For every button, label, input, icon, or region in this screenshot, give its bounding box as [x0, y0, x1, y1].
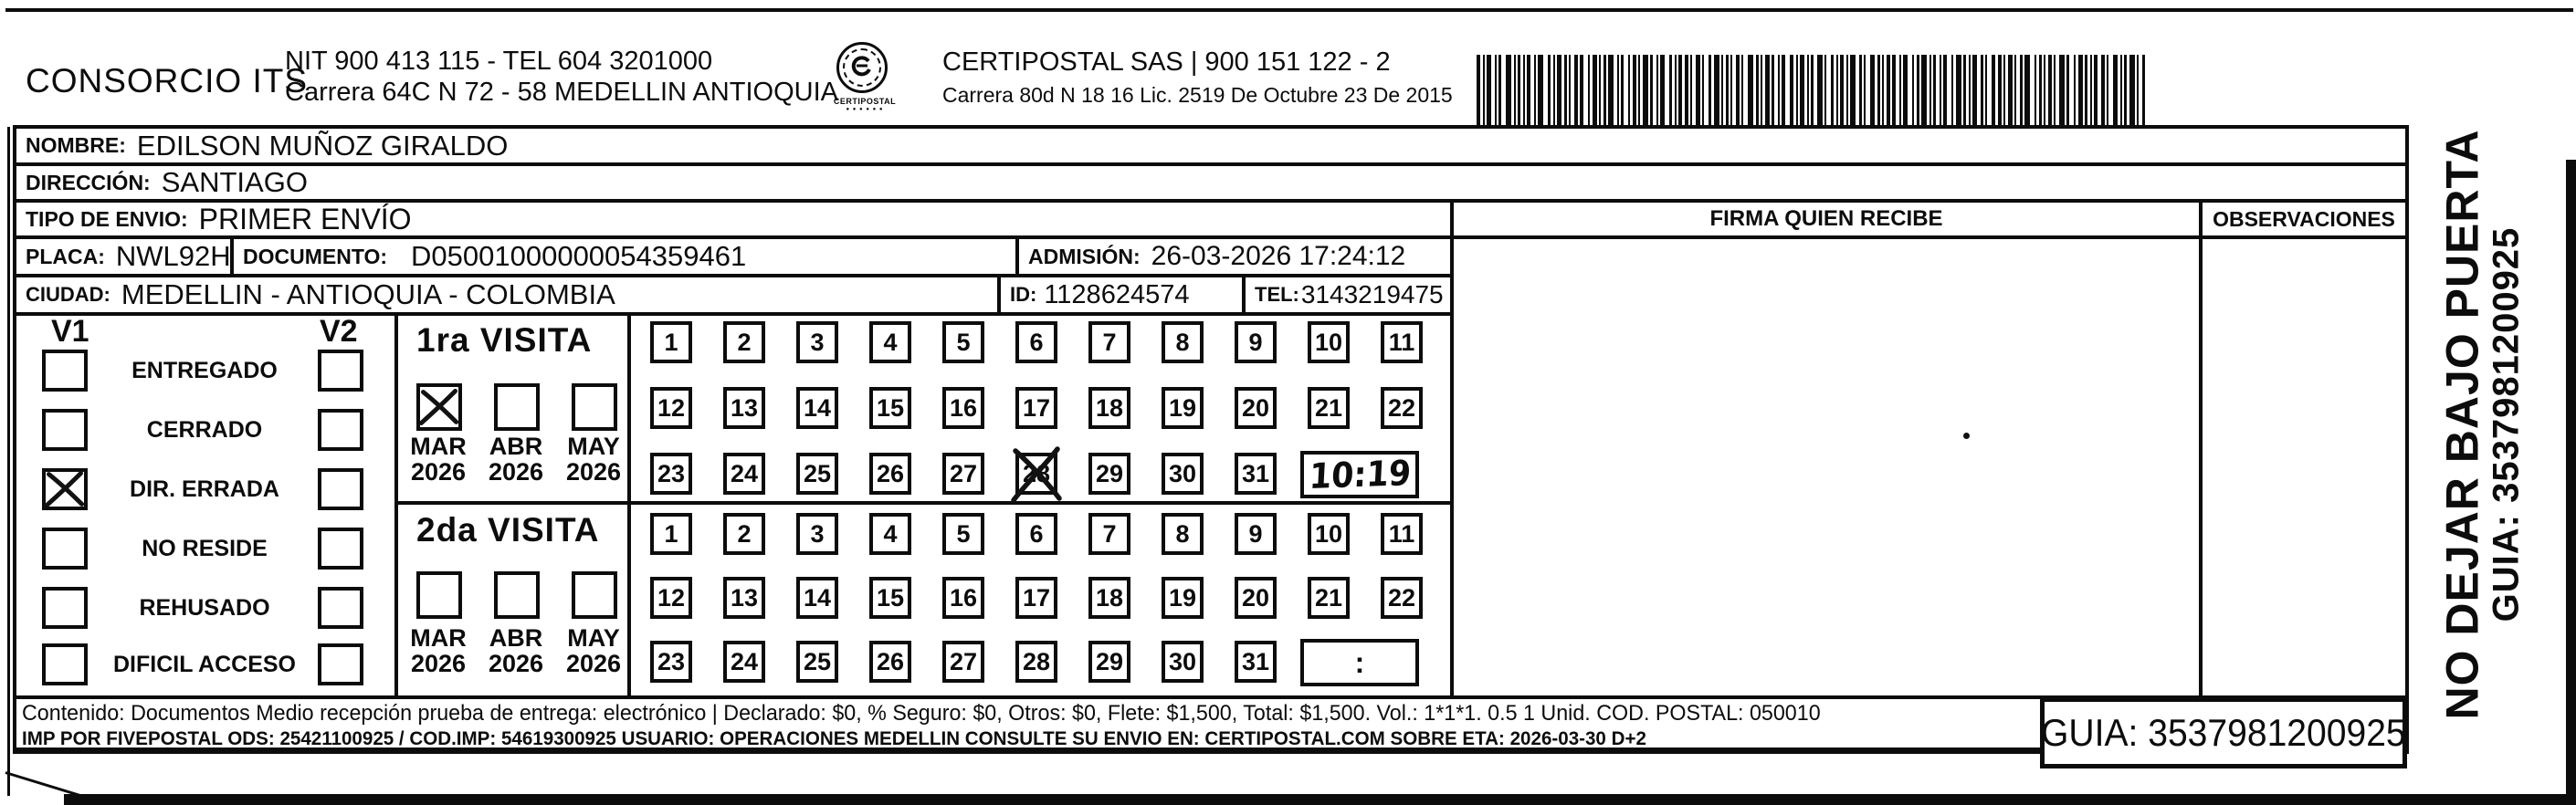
visit1-day-23[interactable]: 23 [650, 453, 692, 495]
visit2-day-17[interactable]: 17 [1015, 577, 1057, 619]
documento-label: DOCUMENTO: [243, 245, 387, 269]
visit2-day-21[interactable]: 21 [1308, 577, 1350, 619]
documento-cell: DOCUMENTO: D05001000000054359461 [230, 235, 1019, 277]
v1-checkbox-entregado[interactable] [42, 350, 88, 392]
v1-checkbox-dir-errada[interactable] [42, 468, 88, 510]
visit2-day-29[interactable]: 29 [1088, 641, 1130, 683]
visit1-day-8[interactable]: 8 [1162, 321, 1204, 363]
visit2-day-27[interactable]: 27 [942, 641, 984, 683]
visit1-day-9[interactable]: 9 [1235, 321, 1277, 363]
visit1-day-13[interactable]: 13 [723, 387, 765, 429]
observaciones-header: OBSERVACIONES [2199, 199, 2409, 239]
visit1-day-11[interactable]: 11 [1381, 321, 1423, 363]
firma-area[interactable] [1450, 235, 2203, 699]
visit1-day-5[interactable]: 5 [942, 321, 984, 363]
side-note: NO DEJAR BAJO PUERTA GUIA: 3537981200925 [2400, 123, 2564, 726]
v1-header: V1 [51, 314, 89, 350]
visit2-day-18[interactable]: 18 [1088, 577, 1130, 619]
nombre-value: EDILSON MUÑOZ GIRALDO [137, 130, 509, 162]
visit1-handwritten-time: 10:19 [1308, 453, 1412, 497]
documento-value: D05001000000054359461 [411, 240, 746, 273]
visit1-day-6[interactable]: 6 [1015, 321, 1057, 363]
visit1-month-checkbox-may[interactable] [572, 383, 617, 431]
nombre-row: NOMBRE: EDILSON MUÑOZ GIRALDO [13, 125, 2409, 166]
visit2-month-checkbox-abr[interactable] [494, 571, 540, 619]
visit1-day-12[interactable]: 12 [650, 387, 692, 429]
firma-header: FIRMA QUIEN RECIBE [1450, 199, 2203, 239]
visit1-day-25[interactable]: 25 [796, 453, 838, 495]
certipostal-address-line: Carrera 80d N 18 16 Lic. 2519 De Octubre… [942, 83, 1453, 108]
visit2-day-19[interactable]: 19 [1162, 577, 1204, 619]
placa-value: NWL92H [116, 240, 231, 273]
handwritten-x-mark [44, 470, 86, 508]
visit1-day-22[interactable]: 22 [1381, 387, 1423, 429]
v2-checkbox-cerrado[interactable] [318, 409, 363, 451]
visit2-day-26[interactable]: 26 [869, 641, 911, 683]
visit2-day-20[interactable]: 20 [1235, 577, 1277, 619]
admision-label: ADMISIÓN: [1028, 245, 1141, 269]
visit2-day-25[interactable]: 25 [796, 641, 838, 683]
observaciones-area[interactable] [2199, 235, 2409, 699]
visit1-day-30[interactable]: 30 [1162, 453, 1204, 495]
company-nit-line: NIT 900 413 115 - TEL 604 3201000 [285, 46, 838, 77]
visit2-day-13[interactable]: 13 [723, 577, 765, 619]
visit1-month-label-may: MAY [563, 433, 625, 461]
visit2-day-8[interactable]: 8 [1162, 513, 1204, 555]
visit2-day-28[interactable]: 28 [1015, 641, 1057, 683]
visit1-day-18[interactable]: 18 [1088, 387, 1130, 429]
v1-checkbox-cerrado[interactable] [42, 409, 88, 451]
id-cell: ID: 1128624574 [997, 274, 1246, 316]
v1-checkbox-no-reside[interactable] [42, 528, 88, 570]
visit2-title: 2da VISITA [416, 511, 600, 549]
visit2-month-label-may: MAY [563, 624, 625, 653]
status-option-label-dir-errada: DIR. ERRADA [95, 468, 314, 510]
status-option-label-dificil-acceso: DIFICIL ACCESO [95, 643, 314, 685]
visit2-day-4[interactable]: 4 [869, 513, 911, 555]
visit1-year-label-abr: 2026 [485, 458, 547, 486]
visit2-day-15[interactable]: 15 [869, 577, 911, 619]
ciudad-label: CIUDAD: [26, 283, 110, 307]
tipo-envio-value: PRIMER ENVÍO [199, 203, 412, 236]
visit2-day-2[interactable]: 2 [723, 513, 765, 555]
page-top-edge [5, 8, 2573, 12]
visit1-day-21[interactable]: 21 [1308, 387, 1350, 429]
visit2-day-1[interactable]: 1 [650, 513, 692, 555]
direccion-value: SANTIAGO [162, 166, 308, 199]
shipping-label-document: CONSORCIO ITS NIT 900 413 115 - TEL 604 … [0, 0, 2576, 805]
visit2-month-checkbox-mar[interactable] [416, 571, 462, 619]
visit1-year-label-mar: 2026 [407, 458, 469, 486]
guia-number-box: GUIA: 3537981200925 [2040, 697, 2407, 768]
certipostal-logo-caption: CERTIPOSTAL [824, 97, 906, 106]
guia-number-text: GUIA: 3537981200925 [2041, 711, 2406, 755]
direccion-label: DIRECCIÓN: [26, 171, 151, 195]
v2-header: V2 [320, 314, 358, 350]
ink-speck [1963, 433, 1970, 439]
status-option-label-no-reside: NO RESIDE [95, 528, 314, 570]
id-label: ID: [1010, 283, 1036, 307]
page-bottom-edge [64, 794, 2576, 805]
tel-label: TEL: [1255, 283, 1299, 307]
visit1-day-4[interactable]: 4 [869, 321, 911, 363]
visit1-day-17[interactable]: 17 [1015, 387, 1057, 429]
company-name: CONSORCIO ITS [26, 62, 308, 100]
id-value: 1128624574 [1044, 280, 1189, 310]
v2-checkbox-entregado[interactable] [318, 350, 363, 392]
visit2-year-label-abr: 2026 [485, 650, 547, 678]
v1-checkbox-dificil-acceso[interactable] [42, 643, 88, 685]
certipostal-logo-icon [836, 42, 888, 93]
visit1-day-28[interactable]: 28 [1015, 453, 1057, 495]
visit1-day-1[interactable]: 1 [650, 321, 692, 363]
visit2-year-label-mar: 2026 [407, 650, 469, 678]
visit2-day-5[interactable]: 5 [942, 513, 984, 555]
visit1-day-19[interactable]: 19 [1162, 387, 1204, 429]
visit1-day-14[interactable]: 14 [796, 387, 838, 429]
visit2-day-3[interactable]: 3 [796, 513, 838, 555]
visit1-day-26[interactable]: 26 [869, 453, 911, 495]
visit1-day-7[interactable]: 7 [1088, 321, 1130, 363]
visit2-day-9[interactable]: 9 [1235, 513, 1277, 555]
visit1-month-checkbox-abr[interactable] [494, 383, 540, 431]
placa-cell: PLACA: NWL92H [13, 235, 234, 277]
v2-checkbox-rehusado[interactable] [318, 587, 363, 629]
visit1-day-24[interactable]: 24 [723, 453, 765, 495]
side-note-warning: NO DEJAR BAJO PUERTA [2437, 130, 2487, 720]
visit2-month-checkbox-may[interactable] [572, 571, 617, 619]
visit2-day-14[interactable]: 14 [796, 577, 838, 619]
footer-imp-line: IMP POR FIVEPOSTAL ODS: 25421100925 / CO… [22, 728, 1646, 750]
visit2-time-box[interactable]: : [1300, 639, 1419, 686]
visit1-day-16[interactable]: 16 [942, 387, 984, 429]
v2-checkbox-dificil-acceso[interactable] [318, 643, 363, 685]
v2-checkbox-dir-errada[interactable] [318, 468, 363, 510]
visit1-time-box[interactable]: 10:19 [1300, 451, 1419, 498]
visit2-day-16[interactable]: 16 [942, 577, 984, 619]
visit1-day-10[interactable]: 10 [1308, 321, 1350, 363]
visit1-day-15[interactable]: 15 [869, 387, 911, 429]
visit2-day-31[interactable]: 31 [1235, 641, 1277, 683]
visit2-day-24[interactable]: 24 [723, 641, 765, 683]
direccion-row: DIRECCIÓN: SANTIAGO [13, 162, 2409, 203]
visit2-day-22[interactable]: 22 [1381, 577, 1423, 619]
v1-checkbox-rehusado[interactable] [42, 587, 88, 629]
visit2-day-10[interactable]: 10 [1308, 513, 1350, 555]
status-option-label-entregado: ENTREGADO [95, 350, 314, 392]
visit1-day-27[interactable]: 27 [942, 453, 984, 495]
v2-checkbox-no-reside[interactable] [318, 528, 363, 570]
tipo-envio-label: TIPO DE ENVIO: [26, 207, 188, 232]
visit1-day-29[interactable]: 29 [1088, 453, 1130, 495]
ciudad-value: MEDELLIN - ANTIOQUIA - COLOMBIA [121, 278, 615, 311]
nombre-label: NOMBRE: [26, 133, 126, 158]
visit2-month-label-mar: MAR [407, 624, 469, 653]
side-note-guia: GUIA: 3537981200925 [2487, 130, 2526, 720]
visit1-title: 1ra VISITA [416, 321, 592, 360]
visit1-day-20[interactable]: 20 [1235, 387, 1277, 429]
ciudad-cell: CIUDAD: MEDELLIN - ANTIOQUIA - COLOMBIA [13, 274, 1001, 316]
visit2-day-6[interactable]: 6 [1015, 513, 1057, 555]
visit1-day-3[interactable]: 3 [796, 321, 838, 363]
tel-cell: TEL: 3143219475 [1242, 274, 1454, 316]
admision-cell: ADMISIÓN: 26-03-2026 17:24:12 [1015, 235, 1454, 277]
page-right-edge [2566, 160, 2576, 799]
visit2-day-30[interactable]: 30 [1162, 641, 1204, 683]
company-address-line: Carrera 64C N 72 - 58 MEDELLIN ANTIOQUIA [285, 77, 838, 108]
page-left-edge [7, 127, 10, 796]
footer-content-line: Contenido: Documentos Medio recepción pr… [22, 701, 1821, 727]
visit2-day-12[interactable]: 12 [650, 577, 692, 619]
admision-value: 26-03-2026 17:24:12 [1151, 241, 1406, 272]
barcode [1477, 55, 2157, 125]
certipostal-name-line: CERTIPOSTAL SAS | 900 151 122 - 2 [942, 47, 1453, 78]
visit1-year-label-may: 2026 [563, 458, 625, 486]
visit1-month-checkbox-mar[interactable] [416, 383, 462, 431]
visit1-day-31[interactable]: 31 [1235, 453, 1277, 495]
visit1-month-label-abr: ABR [485, 433, 547, 461]
visit2-day-7[interactable]: 7 [1088, 513, 1130, 555]
visit2-month-label-abr: ABR [485, 624, 547, 653]
placa-label: PLACA: [26, 245, 105, 269]
visit1-day-2[interactable]: 2 [723, 321, 765, 363]
tipo-envio-row: TIPO DE ENVIO: PRIMER ENVÍO [13, 199, 1454, 239]
status-option-label-cerrado: CERRADO [95, 409, 314, 451]
visit1-month-label-mar: MAR [407, 433, 469, 461]
visit2-day-11[interactable]: 11 [1381, 513, 1423, 555]
handwritten-x-mark [418, 385, 460, 429]
tel-value: 3143219475 [1301, 280, 1444, 309]
visit2-day-23[interactable]: 23 [650, 641, 692, 683]
certipostal-logo-subcaption: ● ● ● ● ● ● [824, 107, 906, 112]
visit2-year-label-may: 2026 [563, 650, 625, 678]
status-option-label-rehusado: REHUSADO [95, 587, 314, 629]
